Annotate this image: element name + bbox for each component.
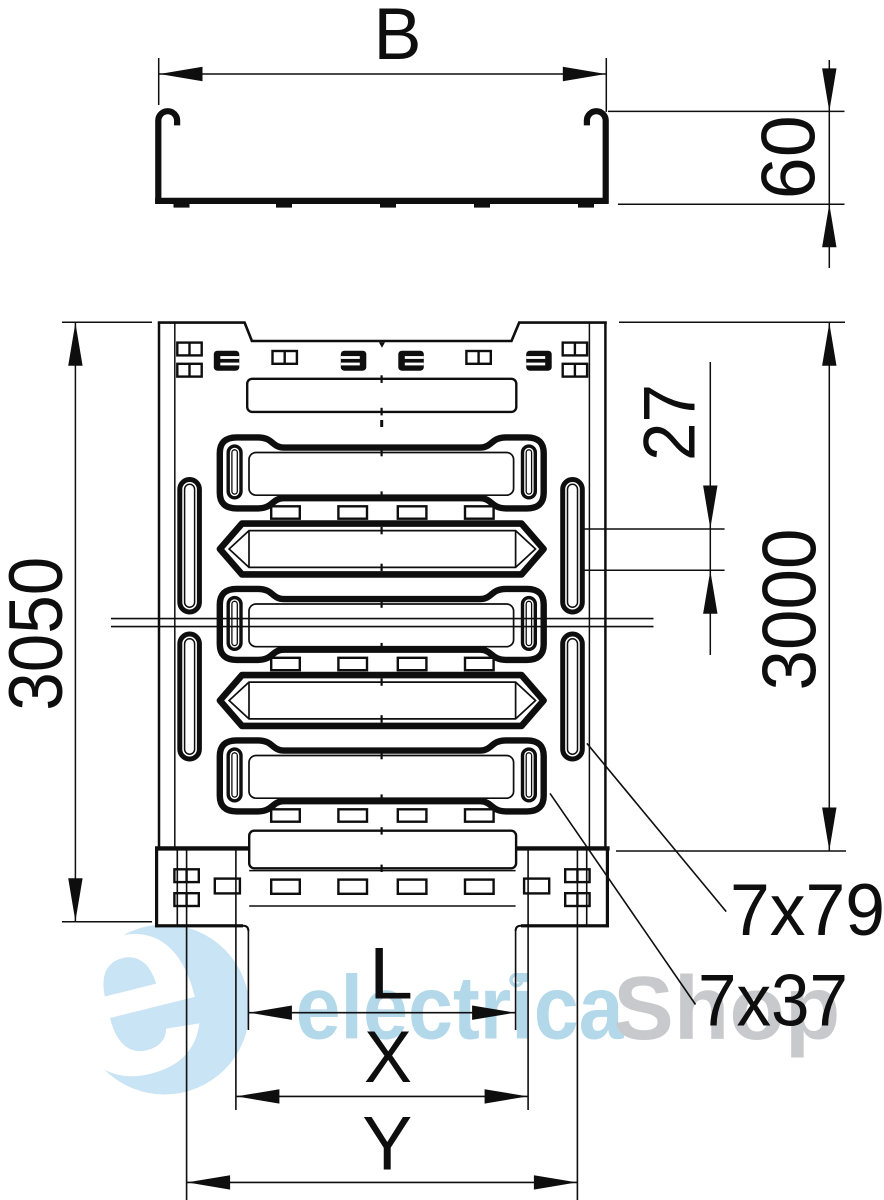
svg-text:B: B	[374, 0, 422, 75]
svg-text:e: e	[22, 827, 231, 1142]
svg-text:Y: Y	[362, 1102, 412, 1187]
svg-text:3050: 3050	[0, 557, 79, 711]
svg-text:7x79: 7x79	[730, 870, 884, 951]
svg-text:3000: 3000	[747, 529, 832, 691]
svg-text:electrica: electrica	[296, 959, 625, 1059]
svg-text:7x37: 7x37	[698, 961, 848, 1042]
svg-text:X: X	[364, 1017, 412, 1098]
svg-text:60: 60	[747, 115, 832, 199]
svg-text:L: L	[369, 933, 413, 1014]
svg-text:27: 27	[629, 384, 710, 461]
